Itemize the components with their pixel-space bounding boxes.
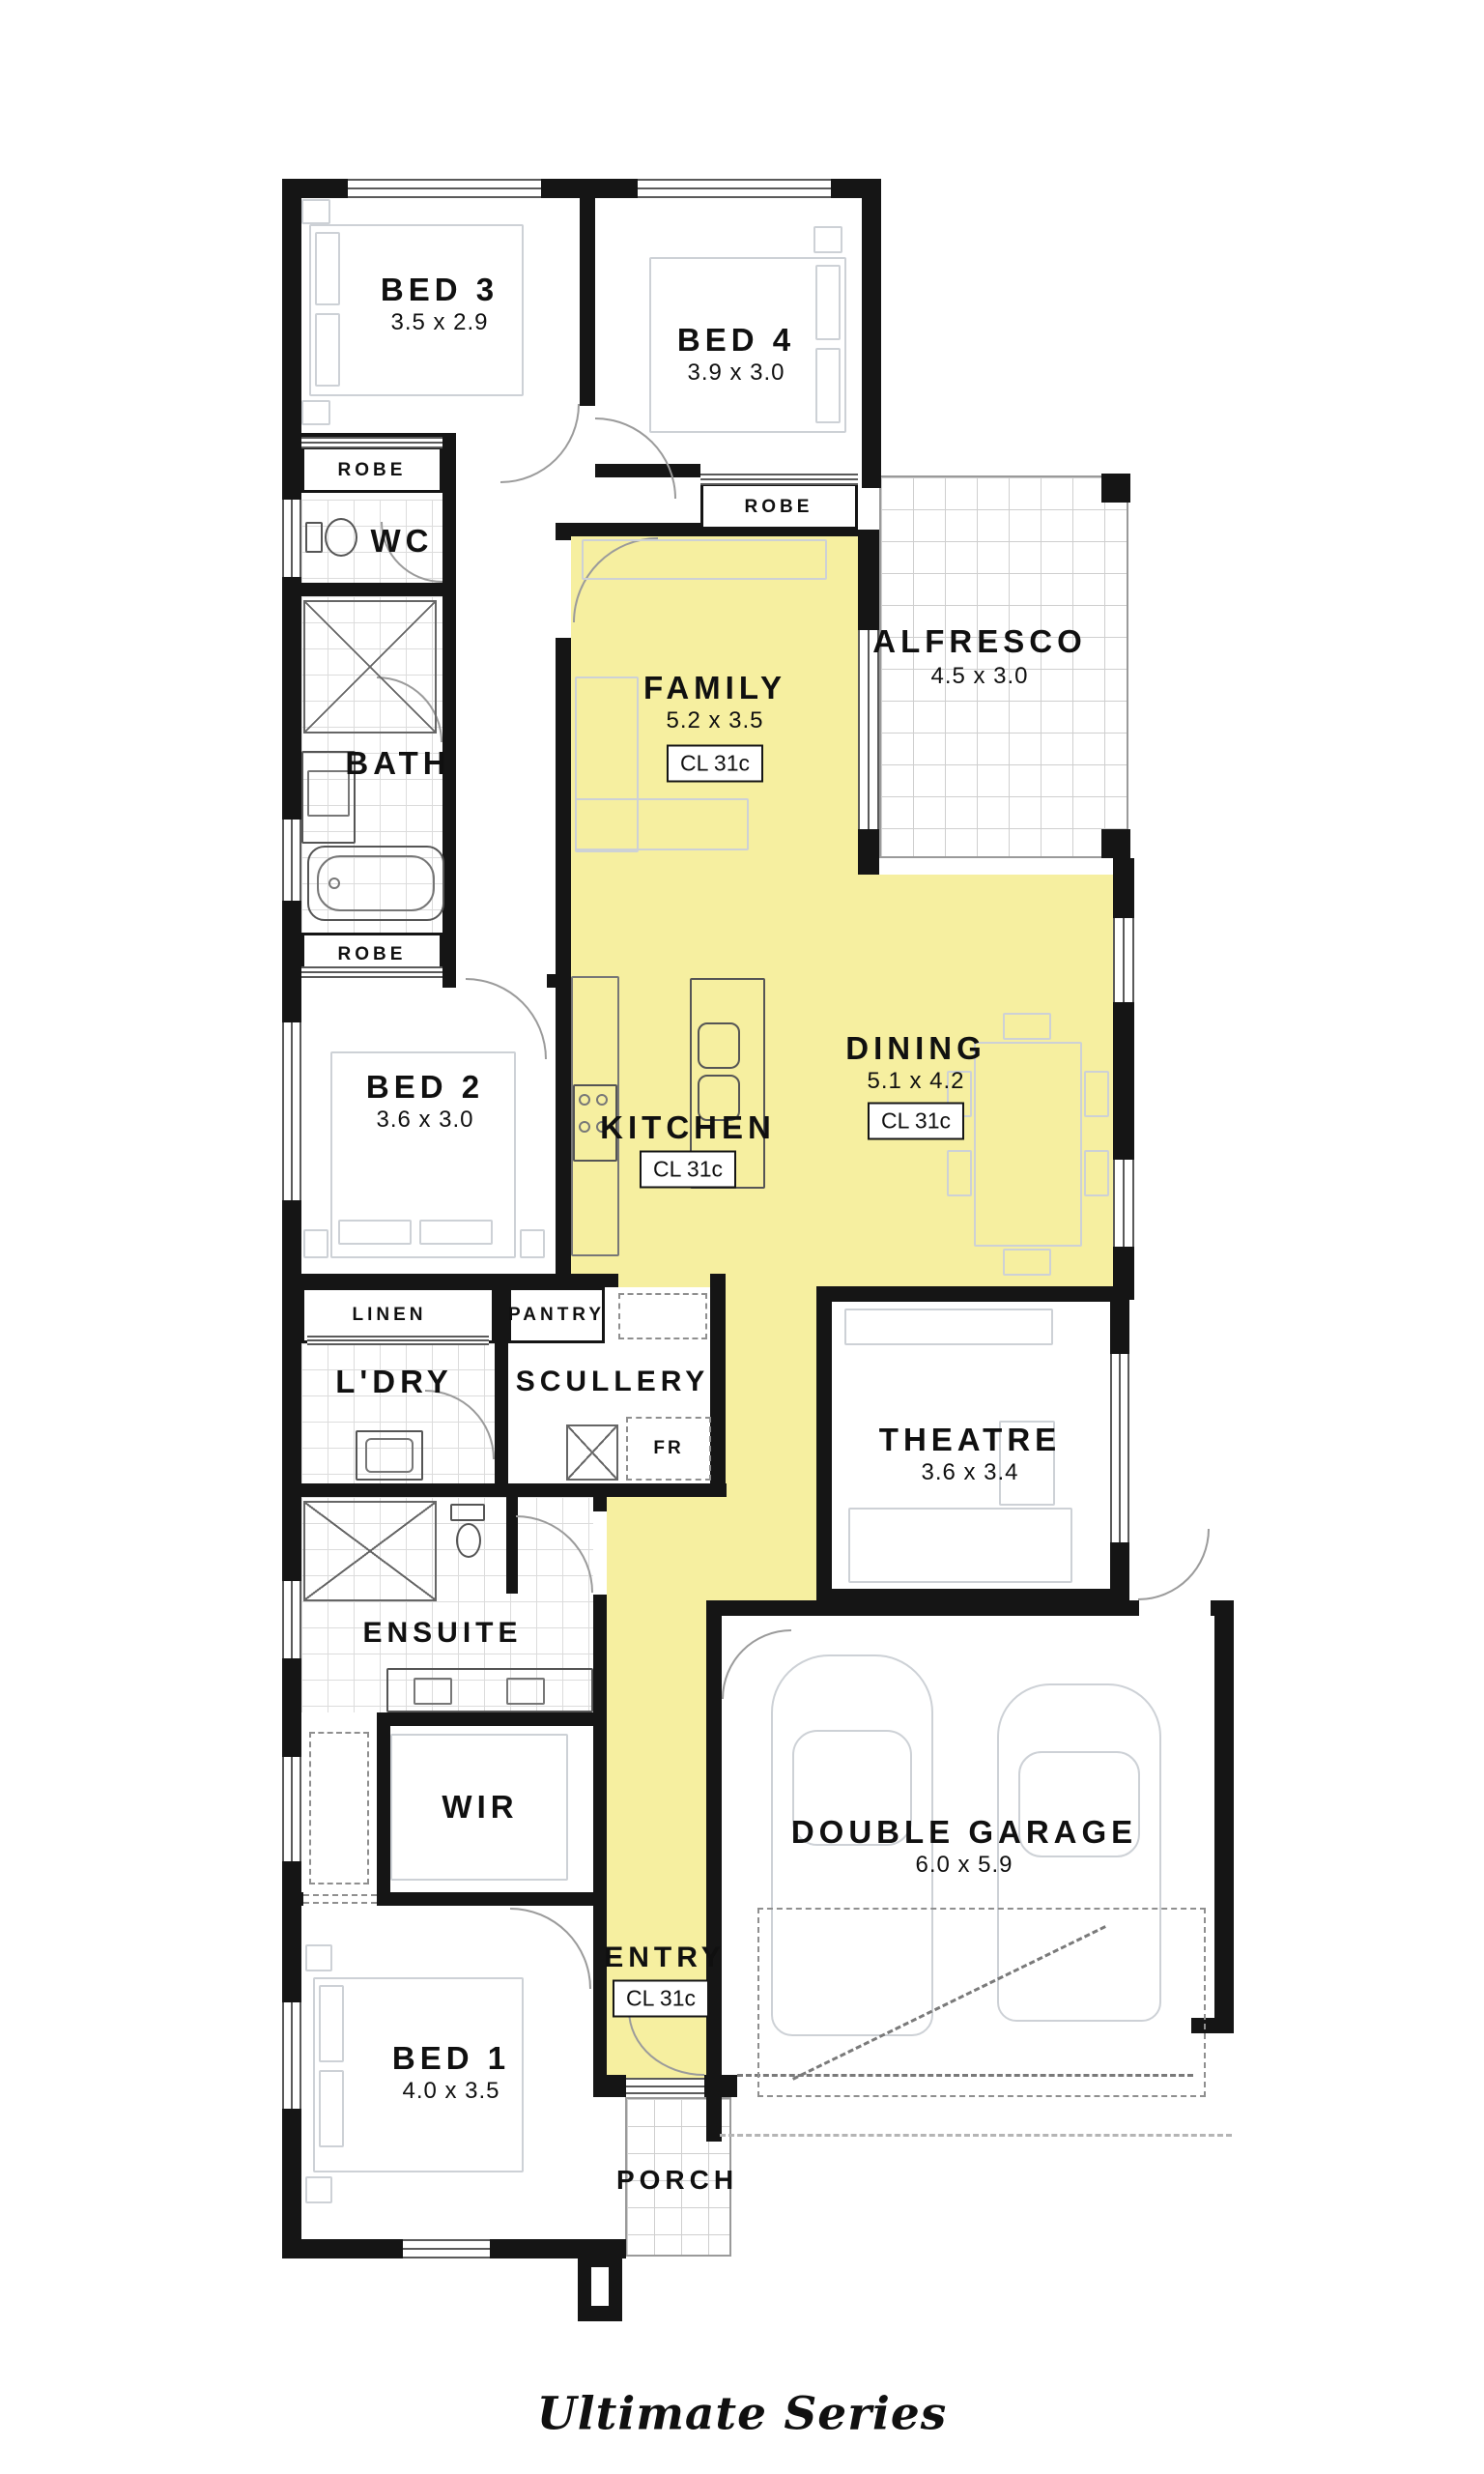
front-door — [626, 2078, 704, 2094]
fridge-label: FR — [653, 1438, 683, 1459]
window — [282, 1022, 301, 1200]
basin — [307, 770, 350, 817]
sink — [698, 1022, 740, 1069]
basin — [506, 1678, 545, 1705]
wall — [593, 1906, 607, 2097]
robe-slider — [301, 437, 442, 448]
alfresco-pier — [1101, 829, 1130, 858]
pillow — [815, 265, 841, 340]
window — [348, 179, 541, 198]
chair — [1084, 1150, 1109, 1196]
basin — [414, 1678, 452, 1705]
burner — [579, 1121, 590, 1133]
burner — [596, 1094, 608, 1106]
window — [282, 1581, 301, 1658]
wall — [816, 1286, 832, 1604]
bedside-table — [305, 2176, 332, 2203]
wall-dashed — [303, 1894, 377, 1904]
bed2-dims: 3.6 x 3.0 — [376, 1107, 473, 1134]
family-dims: 5.2 x 3.5 — [666, 707, 763, 734]
dining-ceiling-tag: CL 31c — [868, 1103, 964, 1140]
wall — [1110, 1286, 1129, 1354]
bed2-label: BED 2 — [366, 1069, 484, 1106]
wall — [1113, 858, 1134, 918]
wall — [377, 1892, 607, 1906]
chair — [1084, 1071, 1109, 1117]
wall — [282, 179, 301, 2258]
chair — [1003, 1013, 1051, 1040]
sofa — [848, 1508, 1072, 1583]
wall — [442, 433, 456, 583]
wall — [282, 1483, 727, 1497]
porch-pier-inner — [591, 2267, 609, 2306]
laundry-trough-inner — [365, 1438, 414, 1473]
window — [282, 2002, 301, 2109]
bedside-table — [301, 400, 330, 425]
pillow — [319, 1985, 344, 2062]
alfresco-label: ALFRESCO — [872, 623, 1087, 660]
shower — [303, 600, 437, 734]
bed3-label: BED 3 — [381, 272, 499, 308]
wall — [720, 1600, 1139, 1616]
robe-bed3-label: ROBE — [338, 460, 407, 481]
door-arc — [1138, 1529, 1210, 1600]
dining-table — [974, 1042, 1082, 1247]
alfresco-pier — [1101, 474, 1130, 503]
family-label: FAMILY — [643, 670, 786, 706]
alfresco-dims: 4.5 x 3.0 — [930, 663, 1028, 690]
wall — [377, 1712, 607, 1726]
toilet — [450, 1504, 485, 1521]
driveway-edge-line — [720, 2134, 1232, 2137]
window — [282, 1757, 301, 1861]
robe-slider — [301, 966, 442, 978]
window — [1113, 1160, 1134, 1247]
linen-slider — [307, 1336, 489, 1345]
door-arc — [466, 978, 547, 1059]
pillow — [338, 1220, 412, 1245]
window — [282, 500, 301, 577]
parking-bay-dashed — [757, 1908, 1206, 2097]
bedside-table — [813, 226, 842, 253]
wall — [282, 1892, 303, 1906]
wall — [704, 2075, 737, 2097]
kitchen-label: KITCHEN — [600, 1109, 776, 1146]
pantry-shelf-dashed — [618, 1293, 707, 1339]
door-arc — [500, 404, 580, 483]
bedside-table — [301, 199, 330, 224]
wall — [442, 933, 456, 976]
bedside-table — [520, 1229, 545, 1258]
shower — [303, 1501, 437, 1601]
robe-shelf-dashed — [309, 1732, 369, 1884]
window — [638, 179, 831, 198]
window — [282, 820, 301, 901]
scullery-label: SCULLERY — [516, 1366, 710, 1398]
hall-lower-zone-fill — [607, 1497, 816, 1600]
bed1-dims: 4.0 x 3.5 — [402, 2078, 499, 2105]
wall — [495, 1274, 508, 1343]
garage-label: DOUBLE GARAGE — [791, 1814, 1137, 1851]
kitchen-ceiling-tag: CL 31c — [640, 1151, 736, 1189]
bed1-label: BED 1 — [392, 2040, 510, 2077]
bed4-dims: 3.9 x 3.0 — [687, 360, 785, 387]
wall — [858, 829, 879, 875]
ensuite-label: ENSUITE — [362, 1617, 522, 1650]
dining-label: DINING — [845, 1030, 986, 1067]
wc-label: WC — [371, 523, 434, 560]
chair — [1003, 1249, 1051, 1276]
robe-slider — [700, 474, 858, 485]
series-logo: Ultimate Series — [537, 2388, 947, 2441]
theatre-label: THEATRE — [879, 1422, 1061, 1458]
tv-unit — [582, 539, 827, 580]
wall — [556, 638, 571, 976]
window — [1113, 918, 1134, 1002]
wall — [1214, 1616, 1234, 2033]
chair — [947, 1150, 972, 1196]
drain — [328, 877, 340, 889]
entry-label: ENTRY — [604, 1942, 726, 1974]
wall — [593, 1595, 607, 1894]
window — [403, 2239, 490, 2258]
wall — [282, 583, 456, 596]
bedside-table — [305, 1944, 332, 1971]
theatre-slider-door — [1110, 1354, 1129, 1542]
wall — [377, 1726, 390, 1892]
wall — [1113, 1002, 1134, 1160]
appliance — [566, 1424, 618, 1481]
wall — [282, 1274, 618, 1287]
porch-label: PORCH — [616, 2165, 738, 2196]
wir-label: WIR — [442, 1789, 518, 1826]
family-ceiling-tag: CL 31c — [667, 745, 763, 783]
hall-zone-fill — [726, 1287, 816, 1504]
wall — [556, 976, 571, 1287]
sofa — [575, 798, 749, 850]
wall — [858, 530, 879, 630]
wall — [282, 2239, 403, 2258]
bed3-dims: 3.5 x 2.9 — [390, 309, 488, 336]
wall — [580, 198, 595, 406]
tv-unit — [844, 1309, 1053, 1345]
theatre-dims: 3.6 x 3.4 — [921, 1459, 1018, 1486]
wall — [862, 179, 881, 488]
robe-bed2-label: ROBE — [338, 944, 407, 965]
linen-label: LINEN — [353, 1305, 427, 1326]
wall — [556, 523, 571, 540]
robe-bed4-label: ROBE — [745, 497, 813, 518]
pillow — [315, 232, 340, 305]
wall — [442, 974, 456, 988]
garage-dims: 6.0 x 5.9 — [915, 1852, 1013, 1879]
wall — [706, 1600, 722, 2142]
wall — [593, 1497, 607, 1511]
wall — [710, 1274, 726, 1497]
toilet — [305, 522, 323, 553]
entry-ceiling-tag: CL 31c — [613, 1980, 709, 2018]
burner — [579, 1094, 590, 1106]
dining-dims: 5.1 x 4.2 — [867, 1068, 964, 1095]
wall — [816, 1286, 1129, 1302]
wall — [495, 1343, 508, 1485]
pillow — [315, 313, 340, 387]
toilet — [456, 1523, 481, 1558]
bed4-label: BED 4 — [677, 322, 795, 359]
floor-plan: BED 3 3.5 x 2.9 BED 4 3.9 x 3.0 FAMILY 5… — [0, 0, 1484, 2474]
laundry-label: L'DRY — [335, 1364, 452, 1400]
wall — [1211, 1600, 1234, 1616]
bath-label: BATH — [345, 745, 450, 782]
toilet — [325, 518, 357, 557]
pillow — [319, 2070, 344, 2147]
pantry-label: PANTRY — [508, 1305, 605, 1326]
pillow — [815, 348, 841, 423]
bedside-table — [303, 1229, 328, 1258]
pillow — [419, 1220, 493, 1245]
